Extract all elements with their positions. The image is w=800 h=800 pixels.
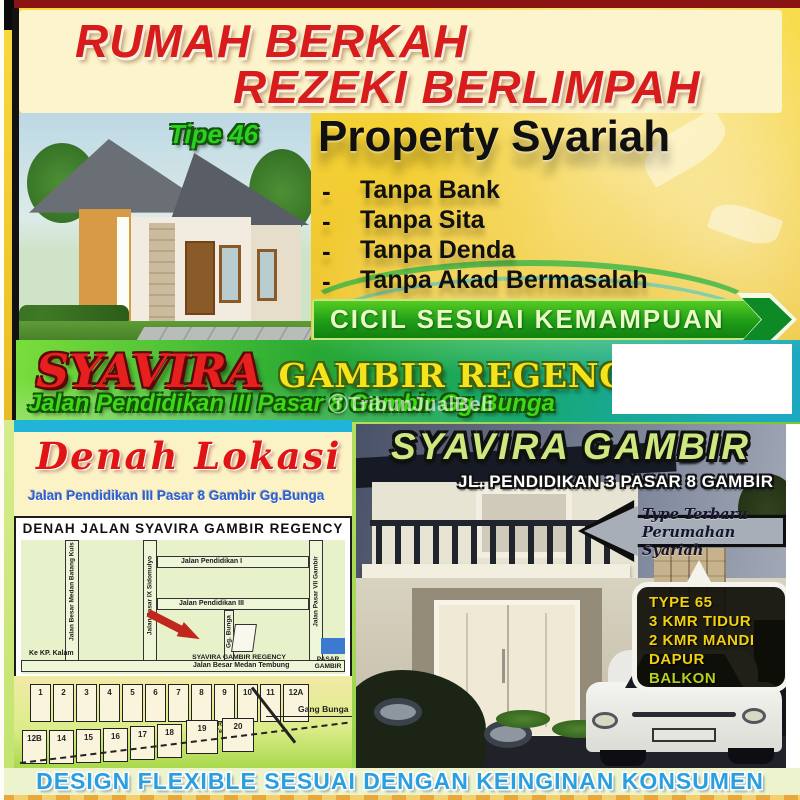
promo-bullet: - Tanpa Akad Bermasalah (322, 266, 782, 296)
footer-dotted-strip (0, 795, 800, 800)
bullet-text: Tanpa Bank (360, 176, 500, 206)
lot-cell: 2 (53, 684, 74, 722)
property-flyer: RUMAH BERKAH REZEKI BERLIMPAH Tipe 46 Pr… (0, 0, 800, 800)
headline-line2: REZEKI BERLIMPAH (233, 60, 701, 114)
stepping-stone-image (374, 698, 422, 726)
cyan-divider (14, 420, 352, 432)
road-label-pasar7: Jalan Pasar VII Gambir (313, 532, 320, 652)
footer-banner: DESIGN FLEXIBLE SESUAI DENGAN KEINGINAN … (0, 768, 800, 795)
road-label-pendidikan3: Jalan Pendidikan III (179, 600, 244, 607)
map-marker-label: SYAVIRA GAMBIR REGENCY (159, 654, 319, 661)
location-map: DENAH JALAN SYAVIRA GAMBIR REGENCY Jalan… (14, 516, 352, 680)
car-headlight-image (742, 708, 766, 724)
car-plate-image (652, 728, 716, 742)
bullet-dash: - (322, 236, 360, 266)
door-panel-line (545, 613, 547, 727)
lot-cell: 19 (186, 720, 218, 754)
headline-box: RUMAH BERKAH REZEKI BERLIMPAH (19, 10, 782, 113)
photo-panel-title: SYAVIRA GAMBIR (356, 426, 786, 468)
door-handle-image (502, 649, 505, 683)
bullet-text: Tanpa Akad Bermasalah (360, 266, 648, 296)
plant-image (496, 710, 550, 728)
lot-cell: 9 (214, 684, 235, 722)
site-plan: 1 2 3 4 5 6 7 8 9 10 11 12A Gang Bunga R… (14, 676, 352, 770)
house-type-label: Tipe 46 (169, 119, 258, 150)
bullet-dash: - (322, 176, 360, 206)
window-image (219, 245, 241, 303)
denah-title: Denah Lokasi (36, 434, 341, 478)
balcony-rail-image (370, 520, 622, 526)
lot-cell: 3 (76, 684, 97, 722)
map-label-ke-kp-kalam: Ke KP. Kalam (29, 650, 74, 657)
road-label-pasar9: Jalan Pasar IX Sidomulyo (147, 536, 154, 656)
lot-cell: 6 (145, 684, 166, 722)
lot-cell: 18 (157, 724, 182, 758)
denah-header: Denah Lokasi Jalan Pendidikan III Pasar … (14, 432, 352, 516)
footer-text: DESIGN FLEXIBLE SESUAI DENGAN KEINGINAN … (36, 768, 764, 795)
bullet-text: Tanpa Sita (360, 206, 485, 236)
map-field: Jalan Pendidikan I Jalan Pendidikan III … (21, 540, 345, 674)
denah-subtitle: Jalan Pendidikan III Pasar 8 Gambir Gg.B… (28, 488, 324, 503)
gang-bunga-label: Gang Bunga (298, 704, 349, 714)
arrow-note-line1: Type Terbaru (642, 506, 786, 524)
bullet-dash: - (322, 206, 360, 236)
spec-bed: 3 KMR TIDUR (649, 613, 755, 632)
photo-panel-subtitle: JL. PENDIDIKAN 3 PASAR 8 GAMBIR (458, 472, 774, 492)
spec-callout: TYPE 65 3 KMR TIDUR 2 KMR MANDI DAPUR BA… (632, 582, 786, 692)
promo-bullet: - Tanpa Bank (322, 176, 782, 206)
road-label-pendidikan1: Jalan Pendidikan I (181, 558, 242, 565)
arrow-note: Type Terbaru Perumahan Syariah (642, 506, 786, 560)
balcony-slab-image (362, 564, 630, 578)
spec-type: TYPE 65 (649, 594, 755, 613)
left-white-edge (0, 0, 4, 800)
pasar-gambir-landmark (321, 638, 345, 654)
road-label-batang-kuis: Jalan Besar Medan Batang Kuis (69, 532, 76, 652)
road-label-gg-bunga: Gg. Bunga (226, 572, 233, 692)
map-title: DENAH JALAN SYAVIRA GAMBIR REGENCY (16, 521, 350, 536)
road-medan-tembung (21, 660, 345, 672)
installment-banner: CICIL SESUAI KEMAMPUAN (312, 299, 780, 340)
lot-cell: 16 (103, 728, 128, 762)
promo-bullet: - Tanpa Sita (322, 206, 782, 236)
front-door-image (185, 241, 215, 315)
road-label-medan-tembung: Jalan Besar Medan Tembung (193, 662, 289, 669)
arrow-note-line2: Perumahan Syariah (642, 524, 786, 560)
bullet-text: Tanpa Denda (360, 236, 515, 266)
window-image (257, 249, 277, 301)
car-wheel-image (600, 750, 646, 766)
lot-cell: 15 (76, 729, 101, 763)
spec-balcony: BALKON (649, 670, 755, 689)
lot-cell: 17 (130, 726, 155, 760)
right-white-strip (786, 424, 800, 770)
top-maroon-strip (0, 0, 800, 8)
lot-cell: 1 (30, 684, 51, 722)
car-grille-image (632, 712, 736, 717)
pasar-gambir-label: PASAR GAMBIR (305, 656, 351, 670)
lot-cell: 7 (168, 684, 189, 722)
car-headlight-image (592, 712, 618, 729)
spec-lines: TYPE 65 3 KMR TIDUR 2 KMR MANDI DAPUR BA… (649, 594, 755, 688)
promo-bullet: - Tanpa Denda (322, 236, 782, 266)
car-wheel-image (728, 748, 774, 764)
lot-cell: 8 (191, 684, 212, 722)
lot-cell: 4 (99, 684, 120, 722)
blank-contact-box (612, 344, 792, 414)
installment-banner-text: CICIL SESUAI KEMAMPUAN (314, 304, 725, 335)
spec-kitchen: DAPUR (649, 651, 755, 670)
spec-bath: 2 KMR MANDI (649, 632, 755, 651)
promo-title: Property Syariah (318, 112, 670, 162)
bullet-dash: - (322, 266, 360, 296)
gang-bunga-line (266, 716, 352, 717)
house-photo-type65: SYAVIRA GAMBIR JL. PENDIDIKAN 3 PASAR 8 … (356, 424, 786, 770)
watermark-text: ⓉTribunJualBeli (328, 388, 493, 417)
house-render-tipe46: Tipe 46 (19, 113, 311, 345)
lot-cell: 5 (122, 684, 143, 722)
callout-pointer (686, 560, 712, 584)
map-marker-site (231, 624, 257, 652)
